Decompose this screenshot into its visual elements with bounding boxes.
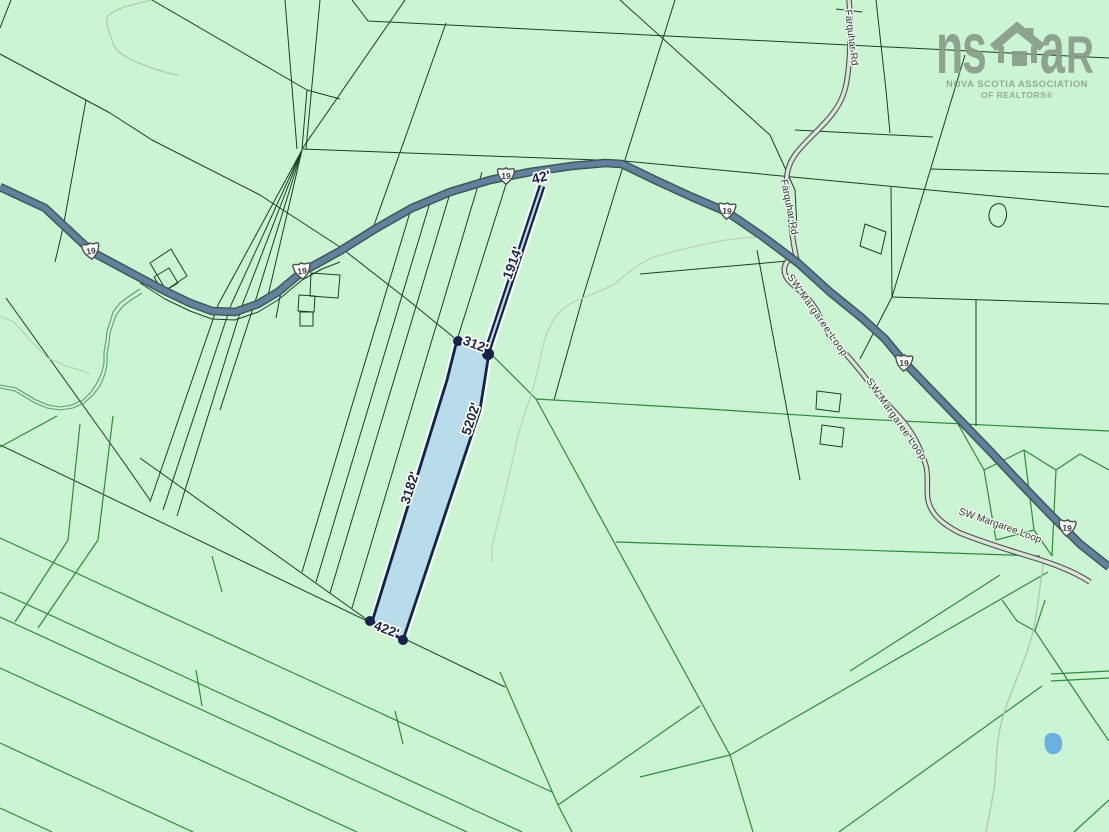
svg-text:a: a <box>1040 8 1065 89</box>
svg-text:ns: ns <box>936 8 986 89</box>
svg-text:OF REALTORS®: OF REALTORS® <box>981 90 1053 100</box>
svg-text:NOVA SCOTIA ASSOCIATION: NOVA SCOTIA ASSOCIATION <box>946 78 1088 89</box>
svg-text:R: R <box>1066 25 1094 84</box>
